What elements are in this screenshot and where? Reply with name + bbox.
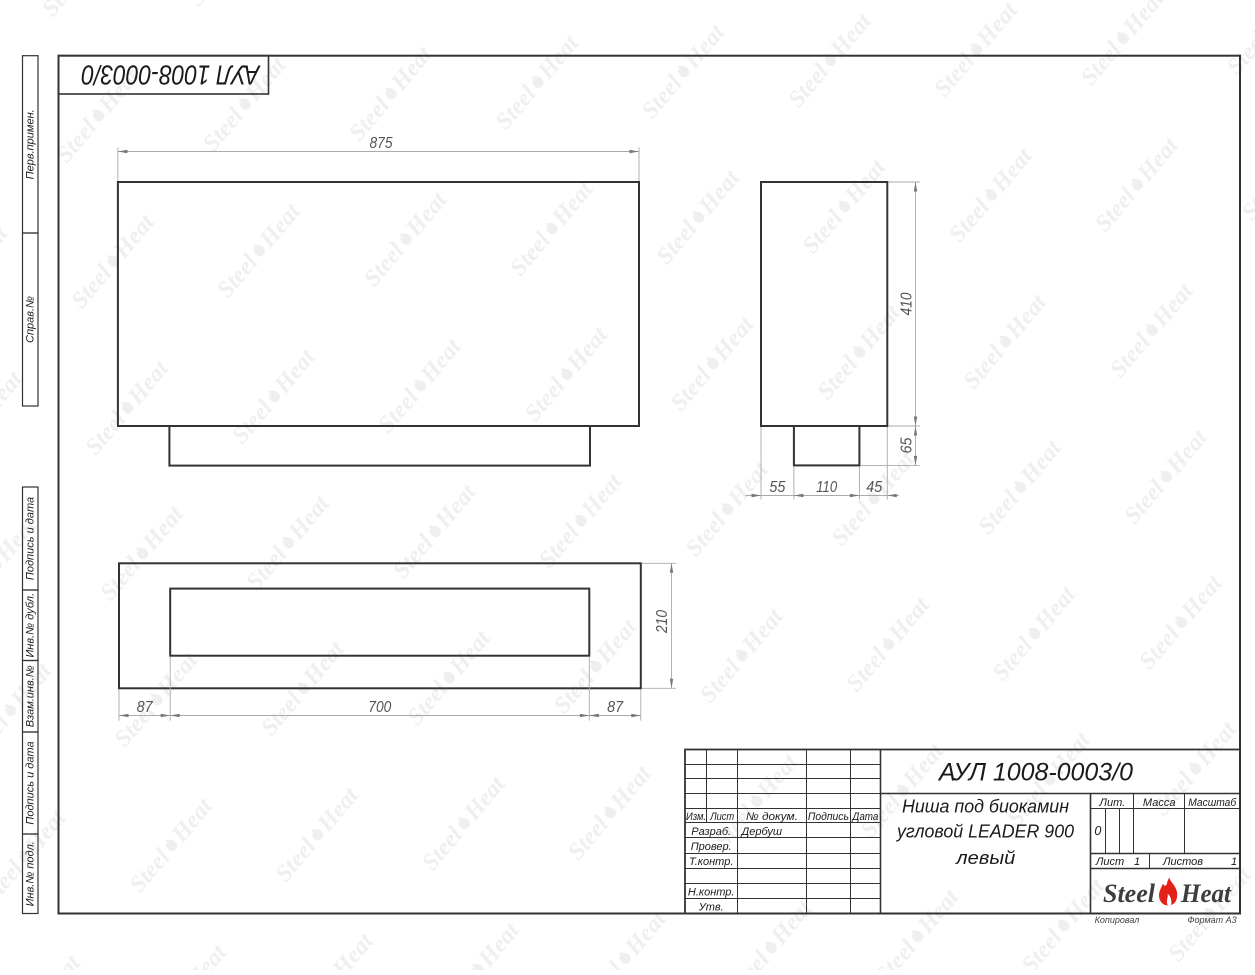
svg-text:Формат А3: Формат А3 — [1187, 915, 1236, 925]
svg-text:Листов: Листов — [1162, 856, 1203, 868]
svg-text:110: 110 — [816, 479, 837, 496]
svg-text:Подпись и дата: Подпись и дата — [24, 497, 36, 580]
svg-text:Инв.№ дубл.: Инв.№ дубл. — [24, 593, 36, 658]
svg-text:Провер.: Провер. — [691, 841, 732, 853]
svg-text:Дата: Дата — [851, 811, 879, 823]
svg-text:87: 87 — [607, 699, 624, 716]
svg-text:Подпись и дата: Подпись и дата — [24, 741, 36, 824]
svg-text:Лит.: Лит. — [1098, 797, 1125, 809]
svg-text:Лист: Лист — [709, 811, 734, 823]
svg-text:Лист: Лист — [1095, 856, 1124, 868]
svg-text:Подпись: Подпись — [808, 811, 849, 823]
svg-text:Масса: Масса — [1143, 797, 1176, 809]
svg-text:Изм.: Изм. — [686, 811, 706, 823]
svg-text:410: 410 — [899, 292, 916, 315]
svg-text:Инв.№ подл.: Инв.№ подл. — [24, 841, 36, 906]
svg-text:Heat: Heat — [1180, 879, 1232, 908]
svg-text:Справ.№: Справ.№ — [24, 296, 36, 343]
svg-text:Утв.: Утв. — [698, 902, 724, 914]
svg-text:№ докум.: № докум. — [746, 811, 798, 823]
svg-text:угловой LEADER 900: угловой LEADER 900 — [895, 821, 1075, 842]
svg-text:Ниша под биокамин: Ниша под биокамин — [902, 795, 1069, 816]
svg-text:45: 45 — [866, 479, 882, 496]
svg-text:0: 0 — [1094, 824, 1101, 838]
svg-text:Копировал: Копировал — [1095, 915, 1140, 925]
svg-text:Т.контр.: Т.контр. — [689, 856, 733, 868]
svg-text:65: 65 — [899, 437, 916, 453]
svg-text:700: 700 — [368, 699, 391, 716]
svg-text:Steel: Steel — [1103, 879, 1156, 908]
svg-text:55: 55 — [769, 479, 785, 496]
svg-text:87: 87 — [137, 699, 154, 716]
svg-text:Перв.примен.: Перв.примен. — [24, 109, 36, 179]
svg-text:Н.контр.: Н.контр. — [688, 886, 735, 898]
svg-text:АУЛ 1008-0003/0: АУЛ 1008-0003/0 — [937, 759, 1133, 787]
svg-text:Масштаб: Масштаб — [1188, 797, 1237, 809]
svg-text:АУЛ 1008-0003/0: АУЛ 1008-0003/0 — [81, 59, 261, 90]
svg-text:Дербуш: Дербуш — [740, 826, 783, 838]
svg-text:Разраб.: Разраб. — [691, 826, 731, 838]
svg-text:875: 875 — [370, 135, 393, 152]
svg-text:левый: левый — [955, 847, 1015, 868]
svg-text:1: 1 — [1231, 856, 1237, 868]
svg-text:210: 210 — [654, 610, 671, 634]
svg-text:1: 1 — [1134, 856, 1140, 868]
svg-text:Взам.инв.№: Взам.инв.№ — [24, 665, 36, 727]
